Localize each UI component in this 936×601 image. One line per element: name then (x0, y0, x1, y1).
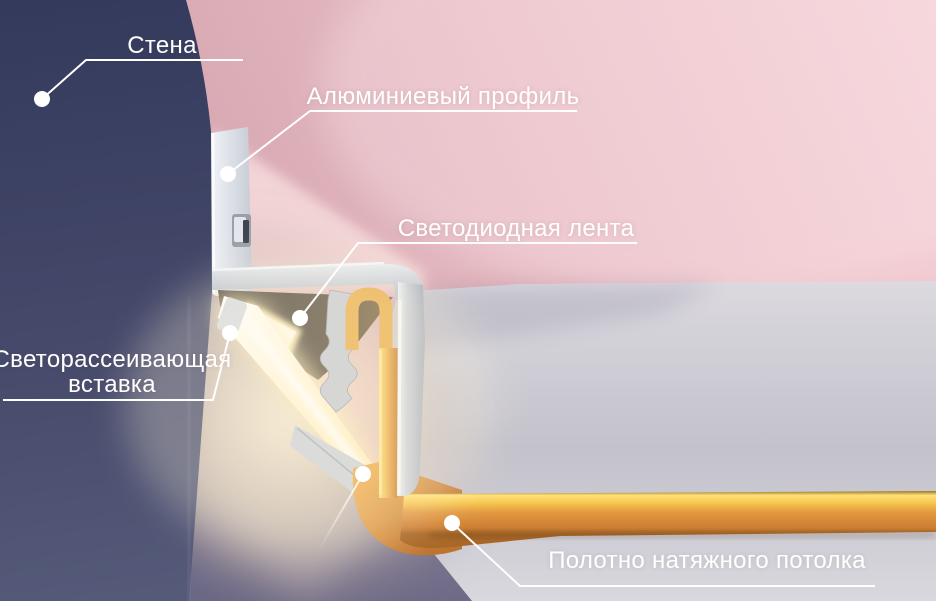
dot-stretch-ceiling-fabric (444, 515, 460, 531)
dot-aluminum-profile (220, 166, 236, 182)
cove-bloom (125, 255, 495, 555)
label-diffuser-insert-line1: Светорассеивающая (0, 347, 231, 372)
illustration-stage: Стена Алюминиевый профиль Светодиодная л… (0, 0, 936, 601)
label-led-strip: Светодиодная лента (398, 216, 634, 241)
dot-extra (355, 466, 371, 482)
dot-led-strip (292, 310, 308, 326)
label-stretch-ceiling-fabric: Полотно натяжного потолка (548, 548, 866, 573)
band-shadow (430, 532, 936, 538)
label-aluminum-profile: Алюминиевый профиль (307, 84, 580, 109)
dot-wall (34, 91, 50, 107)
label-diffuser-insert-line2: вставка (0, 372, 231, 397)
dot-diffuser-insert (222, 325, 238, 341)
label-wall: Стена (127, 33, 197, 58)
label-diffuser-insert: Светорассеивающая вставка (0, 347, 231, 397)
